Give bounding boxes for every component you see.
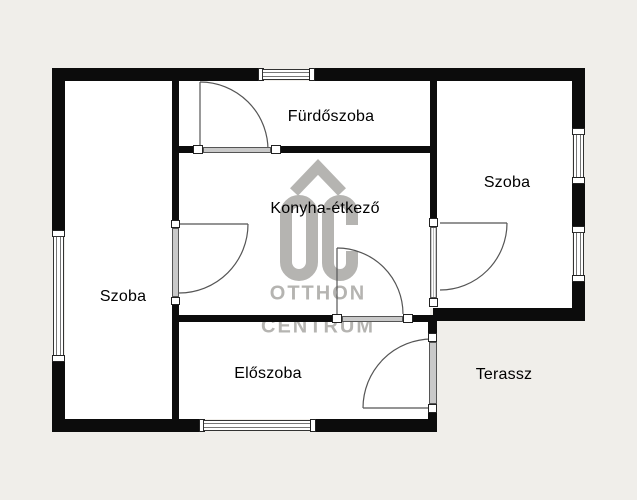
window-bottom [203,420,313,431]
wall-bottom-mid [313,419,437,432]
door-cap [271,145,281,154]
window-right-lower [573,232,584,276]
window-cap [310,419,316,432]
door-cap [403,314,413,323]
window-cap [52,355,65,362]
wall-divider-left-lower [172,305,179,419]
door-kitchen-hall [342,316,403,322]
room-label-terassz: Terassz [476,366,533,384]
wall-bathroom-bottom [281,146,430,153]
door-cap [332,314,342,323]
door-cap [429,218,438,227]
floor-plan: OTTHON CENTRUM [0,0,637,500]
wall-bottom-left [52,419,202,432]
door-arc-left-room [179,224,248,293]
wall-right-a [572,68,585,132]
door-cap [429,298,438,307]
door-terrace [429,342,437,404]
door-cap [193,145,203,154]
door-arc-terrace [363,339,432,408]
door-bathroom [203,147,271,153]
room-label-konyha-etkezo: Konyha-étkező [270,200,379,218]
wall-bathroom-bottom-stub [172,146,193,153]
wall-top-right [313,68,585,81]
room-label-furdoszoba: Fürdőszoba [288,108,375,126]
wall-top-left [52,68,262,81]
window-cap [309,68,315,81]
door-arc-right-room [440,223,507,290]
door-cap [171,297,180,305]
room-label-szoba-left: Szoba [100,288,146,306]
wall-hall-top-left [172,315,332,322]
door-right-room [430,227,437,298]
window-cap [572,275,585,282]
window-cap [572,177,585,184]
door-cap [171,220,180,228]
wall-right-b [572,182,585,228]
wall-hall-right-lower [428,413,437,432]
door-arc-bathroom [200,82,268,150]
room-label-eloszoba: Előszoba [234,365,301,383]
wall-left-upper [52,68,65,235]
window-left [53,236,64,356]
door-cap [428,333,437,342]
door-left-room [172,228,179,297]
door-cap [428,404,437,413]
wall-divider-right-upper [430,81,437,218]
room-label-szoba-right: Szoba [484,174,530,192]
wall-hall-right-upper [428,321,437,333]
wall-terrace-top [433,308,585,321]
wall-hall-top-right [413,315,433,322]
window-right-upper [573,134,584,178]
door-arc-kitchen [337,248,403,314]
window-top [262,69,313,80]
